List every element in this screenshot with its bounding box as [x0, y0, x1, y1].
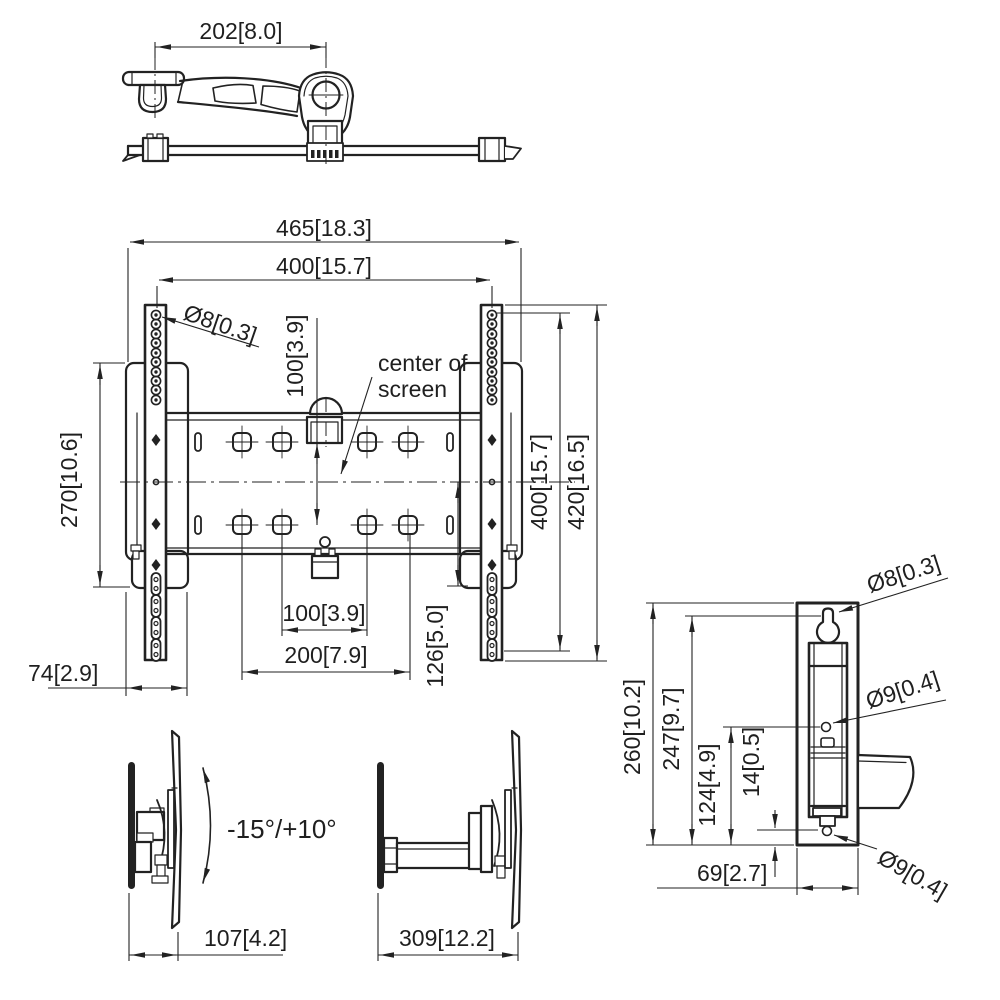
side-view-folded: -15°/+10° 107[4.2] [128, 731, 337, 961]
callout-rail-hole-dia: Ø8[0.3] [162, 299, 260, 348]
label-keyhole-dia: Ø8[0.3] [864, 550, 944, 598]
dim-label-247: 247[9.7] [658, 687, 684, 770]
label-rail-hole-dia: Ø8[0.3] [180, 299, 260, 348]
dim-plate-width: 69[2.7] [657, 848, 858, 895]
plate-channel [809, 643, 847, 836]
wall-mount-dimension-drawing: 202[8.0] [0, 0, 1000, 1000]
dim-label-270: 270[10.6] [56, 432, 82, 528]
front-pivot-knob [307, 398, 342, 447]
dim-label-202: 202[8.0] [199, 18, 282, 44]
dim-label-465: 465[18.3] [276, 215, 372, 241]
dim-strip-height: 270[10.6] [56, 363, 130, 587]
dim-vesa-100: 100[3.9] [282, 534, 367, 636]
top-view-wall-pad [123, 72, 184, 112]
front-view: 465[18.3] 400[15.7] Ø8[0.3] 100[3.9] cen… [28, 215, 607, 696]
tilt-range-label: -15°/+10° [227, 814, 337, 844]
extended-arm [384, 800, 507, 878]
dim-total-width: 465[18.3] [128, 215, 521, 362]
label-mid-hole-dia: Ø9[0.4] [863, 666, 943, 714]
dim-label-260: 260[10.2] [619, 679, 645, 775]
technical-drawing-page: 202[8.0] [0, 0, 1000, 1000]
dim-label-69: 69[2.7] [697, 860, 767, 886]
tilt-arc [203, 768, 211, 883]
front-bottom-latch [312, 537, 338, 578]
side-view-extended: 309[12.2] [377, 731, 521, 961]
dim-label-400-right: 400[15.7] [526, 434, 552, 530]
screen-rail [168, 790, 174, 868]
dim-depth-folded: 107[4.2] [129, 893, 287, 961]
label-bottom-hole-dia: Ø9[0.4] [874, 844, 952, 904]
folded-mechanism [135, 800, 168, 883]
dim-depth-extended: 309[12.2] [378, 893, 518, 961]
dim-label-124: 124[4.9] [694, 743, 720, 826]
dim-arm-depth: 202[8.0] [155, 18, 326, 58]
dim-hole-span-width: 400[15.7] [157, 253, 492, 308]
top-view-arm [178, 78, 301, 116]
center-label-line2: screen [378, 376, 447, 402]
dim-label-126: 126[5.0] [422, 604, 448, 687]
dim-label-100-vert: 100[3.9] [282, 314, 308, 397]
screen-rail [505, 790, 511, 868]
dim-label-14: 14[0.5] [738, 727, 764, 797]
screen-profile [512, 731, 521, 928]
dim-label-309: 309[12.2] [399, 925, 495, 951]
top-view: 202[8.0] [123, 18, 521, 166]
center-label-line1: center of [378, 350, 468, 376]
dim-label-74: 74[2.9] [28, 660, 98, 686]
dim-label-100-bottom: 100[3.9] [282, 600, 365, 626]
dim-label-420: 420[16.5] [563, 434, 589, 530]
dim-label-400-top: 400[15.7] [276, 253, 372, 279]
side-profile-view: 260[10.2] 247[9.7] 124[4.9] 14[0.5] [619, 550, 960, 905]
dim-label-107: 107[4.2] [204, 925, 287, 951]
dim-label-200: 200[7.9] [284, 642, 367, 668]
